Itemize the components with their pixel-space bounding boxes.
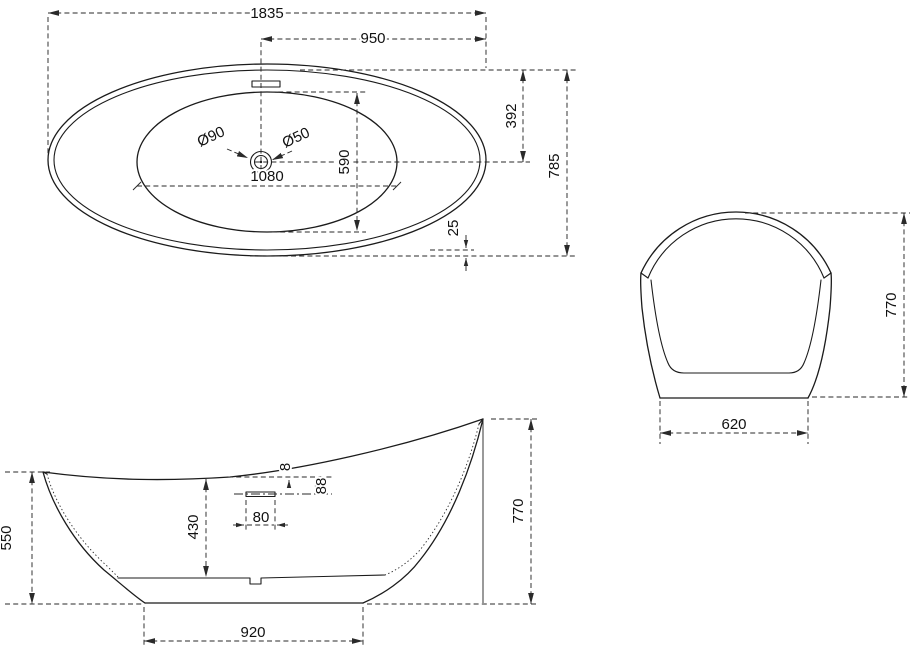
drawing-sheet: 1835 950 392 785 25 1080 [0, 0, 910, 648]
plan-view: 1835 950 392 785 25 1080 [48, 5, 578, 271]
dim-label-drain-flange-dia: Ø90 [195, 123, 228, 150]
side-front-wall [43, 472, 145, 603]
end-view: 770 620 [641, 212, 910, 444]
dim-label-basin-width: 590 [336, 149, 353, 174]
dim-label-basin-length: 1080 [250, 168, 283, 185]
dim-label-overall-length: 1835 [250, 5, 283, 22]
side-rear-inner-surface [385, 424, 479, 575]
end-rim-step-right [824, 273, 831, 278]
technical-drawing: 1835 950 392 785 25 1080 [0, 0, 910, 648]
dim-label-front-rim-height: 550 [0, 525, 15, 550]
end-rim-step-left [641, 273, 648, 278]
dim-label-overflow-below-rim: 88 [313, 478, 330, 495]
end-dimensions: 770 620 [660, 213, 910, 444]
dim-label-overflow-slot-width: 80 [253, 509, 270, 526]
side-basin-floor [118, 575, 385, 584]
side-front-inner-surface [47, 474, 118, 577]
dim-label-rear-rim-height: 770 [510, 498, 527, 523]
plan-dimensions: 1835 950 392 785 25 1080 [48, 5, 578, 271]
side-dimensions: 550 430 920 770 88 80 [0, 419, 540, 647]
dim-label-top-to-centerline: 392 [503, 103, 520, 128]
dim-label-drain-to-end: 950 [360, 30, 385, 47]
end-left-wall [641, 273, 660, 398]
side-rim-top-edge [43, 419, 483, 480]
dim-label-end-height: 770 [883, 292, 900, 317]
side-view: 550 430 920 770 88 80 [0, 419, 540, 647]
dim-label-basin-depth: 430 [185, 514, 202, 539]
dim-label-drain-dia: Ø50 [280, 124, 313, 151]
leader-line-drain-flange [227, 149, 248, 158]
dim-label-rim-gap: 25 [445, 220, 462, 237]
dim-label-overall-width: 785 [546, 153, 563, 178]
end-outer-rim-arc [641, 212, 831, 273]
dim-label-base-length: 920 [240, 624, 265, 641]
end-inner-rim-arc [648, 219, 824, 278]
dim-label-end-base-width: 620 [721, 416, 746, 433]
dim-label-rim-edge-thickness: 8 [277, 463, 294, 471]
end-basin-profile [651, 280, 821, 373]
plan-overflow-slot [252, 81, 280, 87]
leader-line-drain-hole [272, 151, 292, 160]
